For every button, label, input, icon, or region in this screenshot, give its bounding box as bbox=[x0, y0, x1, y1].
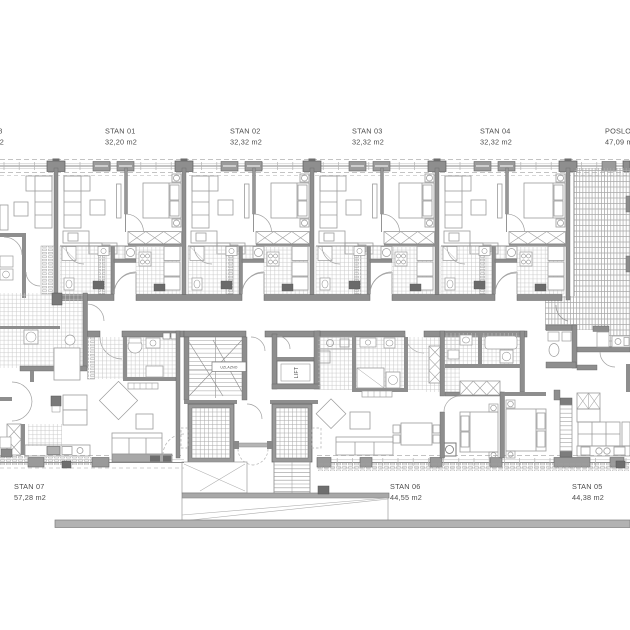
svg-text:POSLOVNI: POSLOVNI bbox=[605, 127, 630, 136]
svg-text:36,02 m2: 36,02 m2 bbox=[0, 138, 4, 147]
svg-text:LIFT: LIFT bbox=[294, 366, 300, 378]
svg-text:STAN 05: STAN 05 bbox=[572, 482, 602, 491]
svg-text:32,32 m2: 32,32 m2 bbox=[480, 138, 512, 147]
svg-text:57,28 m2: 57,28 m2 bbox=[14, 493, 46, 502]
svg-text:STAN 08: STAN 08 bbox=[0, 127, 2, 136]
svg-text:STAN 03: STAN 03 bbox=[352, 127, 382, 136]
svg-text:32,20 m2: 32,20 m2 bbox=[105, 138, 137, 147]
svg-text:44,38 m2: 44,38 m2 bbox=[572, 493, 604, 502]
svg-text:STAN 01: STAN 01 bbox=[105, 127, 135, 136]
svg-text:47,09 m2: 47,09 m2 bbox=[605, 138, 630, 147]
svg-text:STAN 06: STAN 06 bbox=[390, 482, 420, 491]
svg-text:STAN 04: STAN 04 bbox=[480, 127, 510, 136]
svg-text:STAN 07: STAN 07 bbox=[14, 482, 44, 491]
svg-text:32,32 m2: 32,32 m2 bbox=[230, 138, 262, 147]
svg-text:44,55 m2: 44,55 m2 bbox=[390, 493, 422, 502]
svg-text:STAN 02: STAN 02 bbox=[230, 127, 260, 136]
svg-text:32,32 m2: 32,32 m2 bbox=[352, 138, 384, 147]
svg-text:UZLAZNO: UZLAZNO bbox=[220, 366, 237, 370]
